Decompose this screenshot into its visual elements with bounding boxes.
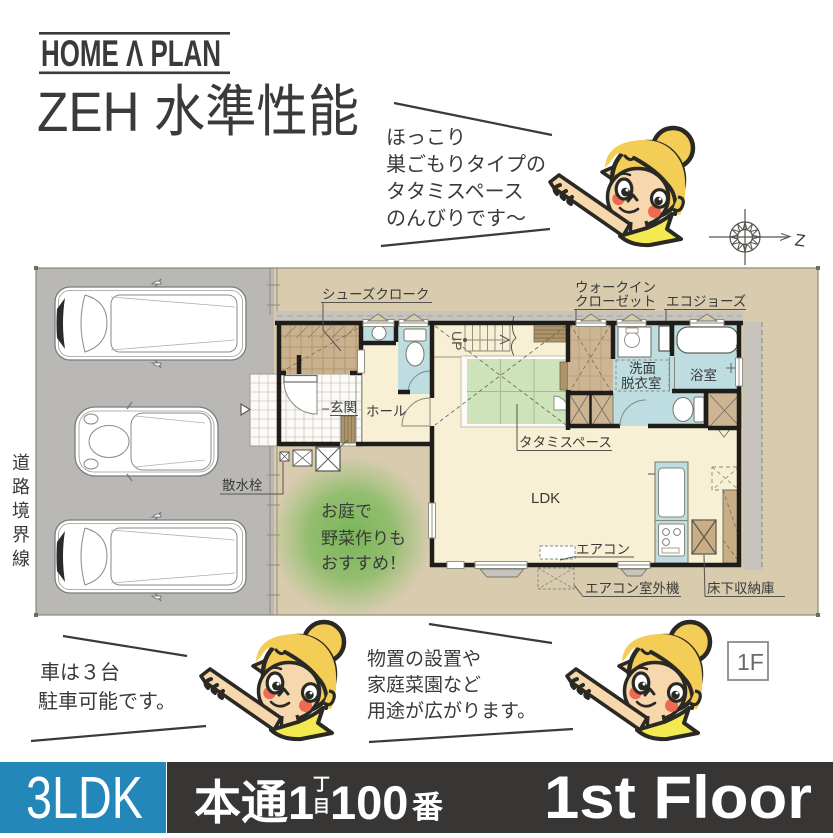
svg-text:ウォークイン: ウォークイン xyxy=(575,280,656,295)
svg-text:家庭菜園など: 家庭菜園など xyxy=(367,674,481,696)
svg-text:野菜作りも: 野菜作りも xyxy=(321,529,406,548)
svg-text:玄関: 玄関 xyxy=(330,399,357,415)
svg-text:エアコン: エアコン xyxy=(576,542,630,557)
svg-text:浴室: 浴室 xyxy=(690,367,717,383)
svg-text:1st Floor: 1st Floor xyxy=(544,764,812,831)
svg-text:お庭で: お庭で xyxy=(321,502,372,521)
svg-text:100: 100 xyxy=(330,776,408,829)
svg-text:洗面: 洗面 xyxy=(629,361,656,376)
svg-text:脱衣室: 脱衣室 xyxy=(621,375,662,391)
svg-text:ほっこり: ほっこり xyxy=(386,127,466,149)
svg-text:番: 番 xyxy=(412,790,444,825)
svg-text:UP: UP xyxy=(449,331,465,350)
svg-text:おすすめ！: おすすめ！ xyxy=(321,554,406,573)
svg-text:車は３台: 車は３台 xyxy=(40,661,120,684)
svg-text:路: 路 xyxy=(12,477,30,497)
svg-text:タタミスペース: タタミスペース xyxy=(519,435,612,450)
svg-text:3LDK: 3LDK xyxy=(26,765,143,831)
svg-text:巣ごもりタイプの: 巣ごもりタイプの xyxy=(386,153,546,176)
svg-text:線: 線 xyxy=(12,549,30,569)
svg-text:丁: 丁 xyxy=(313,775,330,794)
svg-text:床下収納庫: 床下収納庫 xyxy=(707,581,775,596)
svg-text:ホール: ホール xyxy=(366,404,407,419)
svg-text:エアコン室外機: エアコン室外機 xyxy=(585,580,680,596)
svg-text:エコジョーズ: エコジョーズ xyxy=(666,294,746,309)
svg-text:HOME Λ PLAN: HOME Λ PLAN xyxy=(41,33,221,74)
svg-text:散水栓: 散水栓 xyxy=(222,478,263,493)
svg-text:1F: 1F xyxy=(737,649,764,675)
svg-text:のんびりです〜: のんびりです〜 xyxy=(386,207,526,230)
svg-text:物置の設置や: 物置の設置や xyxy=(367,648,481,670)
svg-text:道: 道 xyxy=(12,453,30,473)
svg-text:シューズクローク: シューズクローク xyxy=(322,287,429,302)
svg-text:目: 目 xyxy=(313,797,330,816)
svg-text:タタミスペース: タタミスペース xyxy=(386,180,524,203)
svg-text:用途が広がります。: 用途が広がります。 xyxy=(367,700,536,722)
svg-text:LDK: LDK xyxy=(531,490,560,507)
svg-text:ZEH 水準性能: ZEH 水準性能 xyxy=(37,80,359,143)
svg-text:境: 境 xyxy=(12,501,30,521)
svg-text:駐車可能です。: 駐車可能です。 xyxy=(38,690,176,713)
svg-text:本通1: 本通1 xyxy=(194,776,314,829)
svg-text:クローゼット: クローゼット xyxy=(575,294,656,309)
svg-text:界: 界 xyxy=(12,525,30,545)
